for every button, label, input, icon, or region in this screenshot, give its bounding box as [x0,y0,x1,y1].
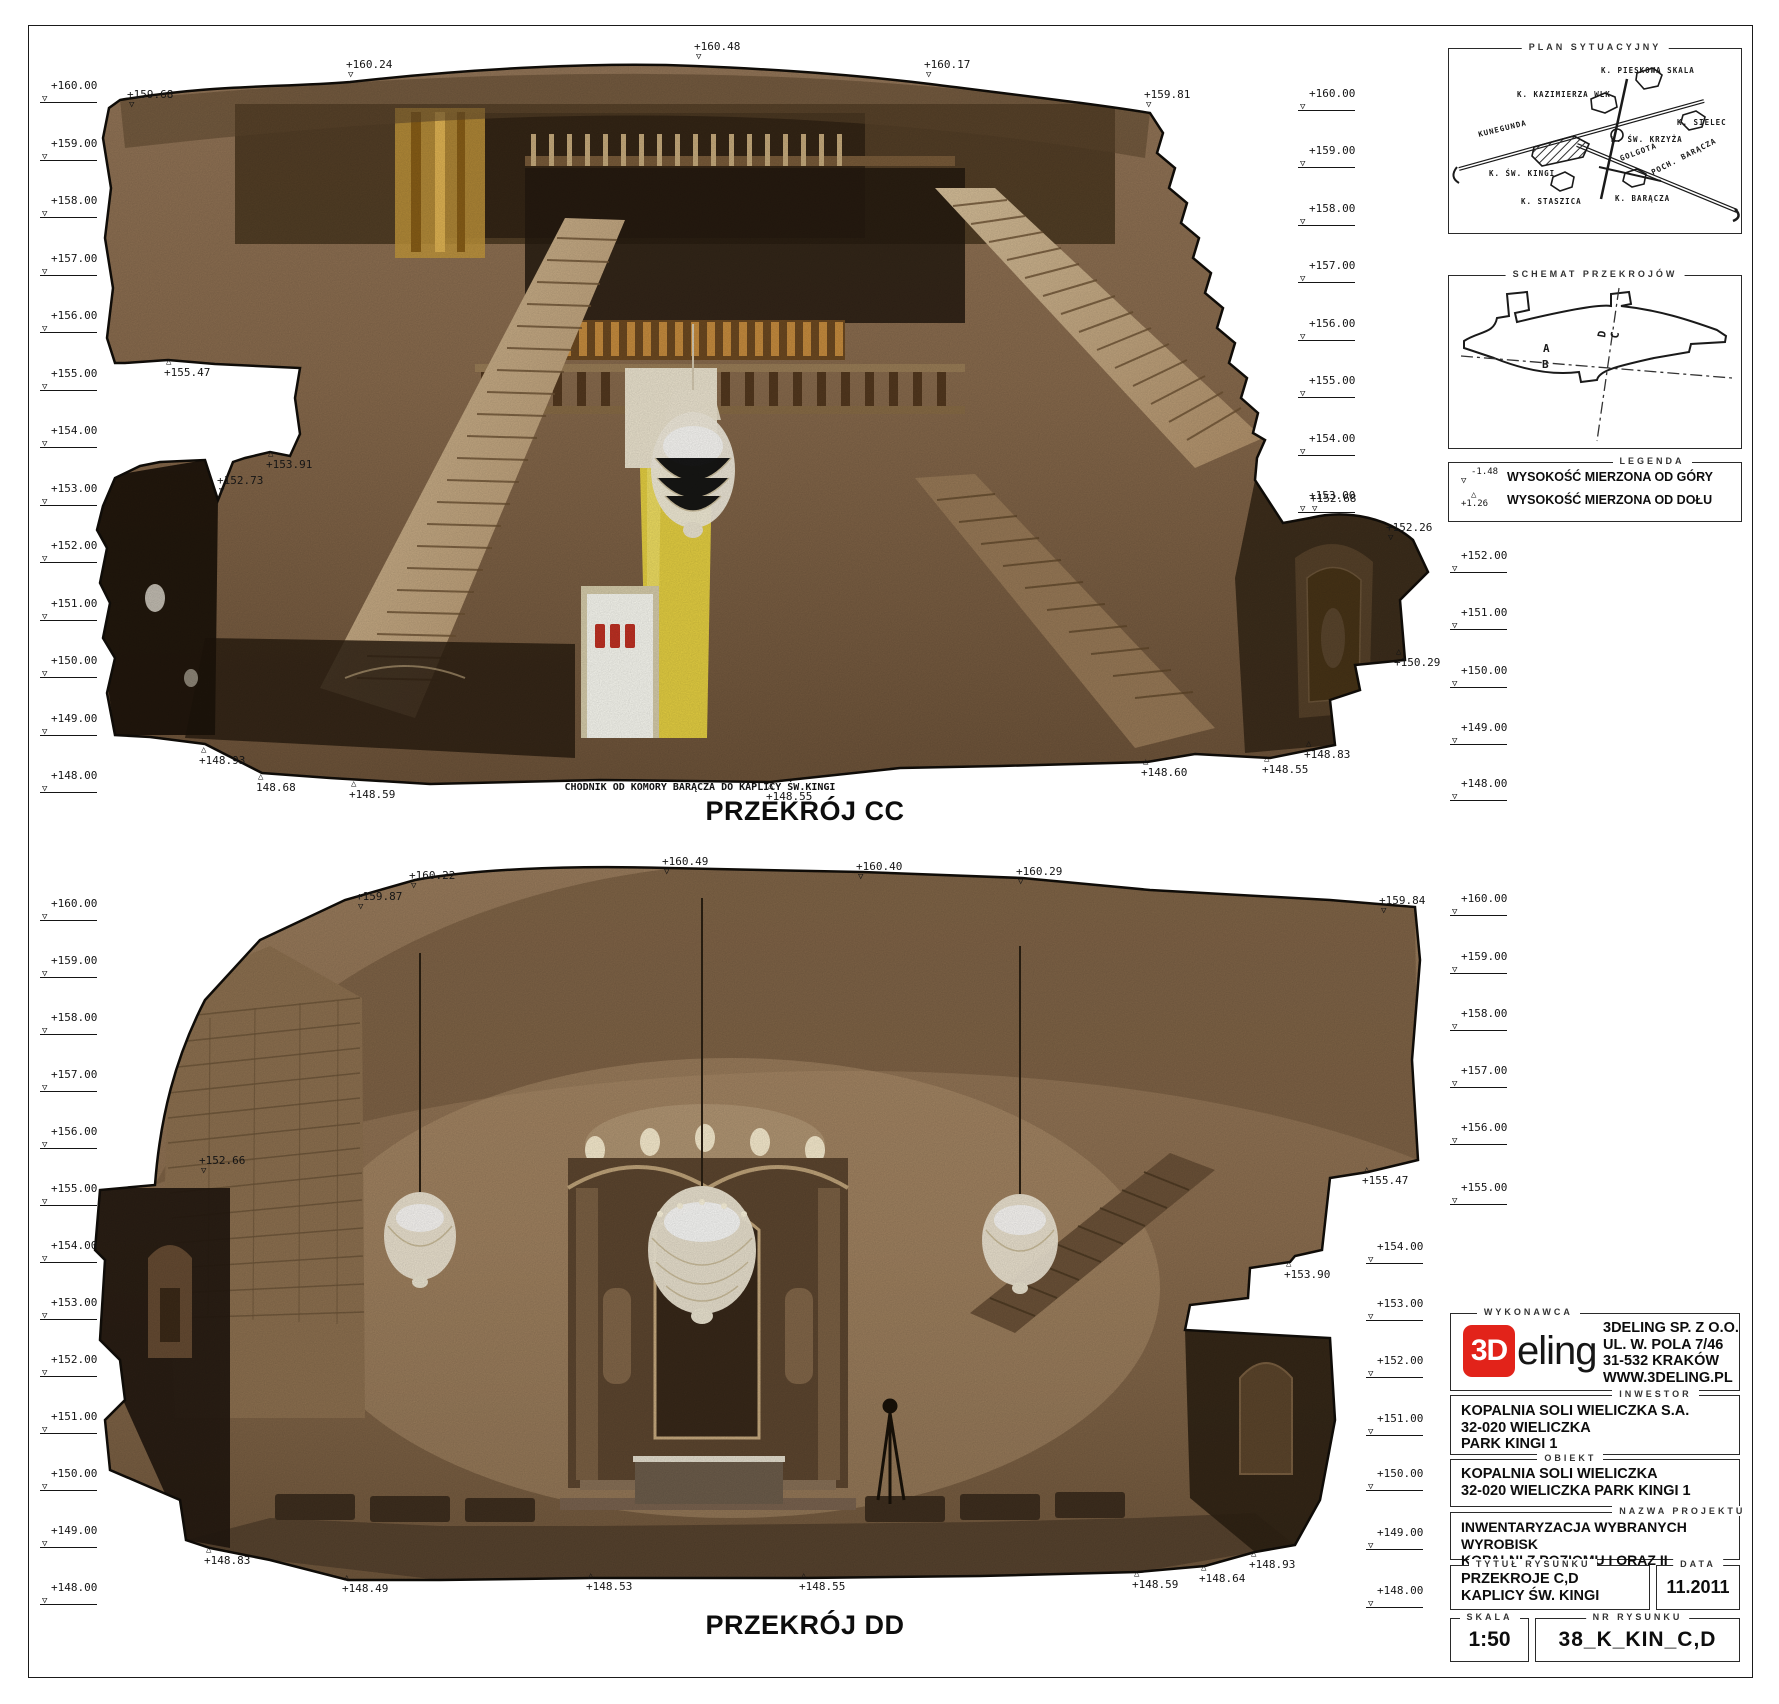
triangle-down-icon: ▽ [1368,1313,1373,1322]
level-marker: +152.00▽ [1450,550,1507,573]
cc-caption: CHODNIK OD KOMORY BARĄCZA DO KAPLICY ŚW.… [565,782,836,793]
level-marker: +160.00▽ [40,898,97,921]
triangle-down-icon: ▽ [1368,1483,1373,1492]
triangle-down-icon: ▽ [42,1084,47,1093]
spot-elevation: △+148.49 [342,1574,388,1595]
triangle-down-icon: ▽ [42,95,47,104]
level-marker: +159.00▽ [1298,145,1355,168]
spot-elevation: +160.17▽ [924,59,970,80]
triangle-down-icon: ▽ [1452,1080,1457,1089]
wykonawca-box: WYKONAWCA 3D eling 3DELING SP. Z O.O.UL.… [1450,1313,1740,1391]
triangle-down-icon: ▽ [1310,505,1356,514]
triangle-down-icon: ▽ [1016,878,1062,887]
level-marker: +148.00▽ [40,1582,97,1605]
level-marker: +158.00▽ [40,1012,97,1035]
triangle-down-icon: ▽ [199,1167,245,1176]
triangle-down-icon: ▽ [1368,1542,1373,1551]
plan-sytuacyjny-box: PLAN SYTUACYJNY [1448,48,1742,234]
skala-value: 1:50 [1451,1619,1528,1661]
level-marker: +156.00▽ [1450,1122,1507,1145]
triangle-down-icon: ▽ [1368,1600,1373,1609]
level-marker: +153.00▽ [1366,1298,1423,1321]
triangle-down-icon: ▽ [1452,1137,1457,1146]
spot-elevation: +160.48▽ [694,41,740,62]
level-marker: +160.00▽ [1298,88,1355,111]
level-marker: +149.00▽ [1450,722,1507,745]
triangle-down-icon: ▽ [1368,1256,1373,1265]
skala-box: SKALA 1:50 [1450,1618,1529,1662]
level-marker: +148.00▽ [1366,1585,1423,1608]
level-marker: +148.00▽ [40,770,97,793]
level-marker: +151.00▽ [40,1411,97,1434]
triangle-down-icon: ▽ [1452,1023,1457,1032]
nr-rysunku-value: 38_K_KIN_C,D [1536,1619,1739,1661]
spot-elevation: △+155.47 [1362,1166,1408,1187]
spot-elevation: △+150.29 [1394,648,1440,669]
level-marker: +153.00▽ [40,483,97,506]
triangle-down-icon: ▽ [1300,275,1305,284]
inwestor-box: INWESTOR KOPALNIA SOLI WIELICZKA S.A.32-… [1450,1395,1740,1455]
kingi-chamber-hatched [1532,136,1589,166]
map-label: K. SIELEC [1677,118,1727,127]
triangle-down-icon: ▽ [1452,565,1457,574]
triangle-down-icon: ▽ [1368,1428,1373,1437]
inwestor-header: INWESTOR [1612,1389,1698,1399]
triangle-down-icon: ▽ [42,1255,47,1264]
triangle-down-icon: ▽ [1300,333,1305,342]
spot-elevation: △+148.64 [1199,1564,1245,1585]
level-marker: +150.00▽ [40,655,97,678]
level-marker: +158.00▽ [1450,1008,1507,1031]
data-box: DATA 11.2011 [1656,1565,1740,1610]
level-marker: +149.00▽ [40,713,97,736]
triangle-down-icon: ▽ [1452,680,1457,689]
drawing-sheet: +160.00▽+159.00▽+158.00▽+157.00▽+156.00▽… [0,0,1779,1704]
spot-elevation: △+148.93 [1249,1550,1295,1571]
spot-elevation: △+148.59 [1132,1570,1178,1591]
map-label: KUNEGUNDA [1477,118,1527,139]
schemat-przekrojow-box: SCHEMAT PRZEKROJÓW ABDC [1448,275,1742,449]
level-marker: +159.00▽ [1450,951,1507,974]
nr-rysunku-header: NR RYSUNKU [1586,1612,1690,1622]
spot-elevation: +160.49▽ [662,856,708,877]
spot-elevation: +159.81▽ [1144,89,1190,110]
triangle-down-icon: ▽ [1452,908,1457,917]
triangle-down-icon: ▽ [1379,907,1425,916]
map-label: K. PIESKOWA SKALA [1601,66,1695,75]
level-marker: +160.00▽ [1450,893,1507,916]
level-marker: +157.00▽ [40,253,97,276]
triangle-down-icon: ▽ [42,268,47,277]
triangle-down-icon: ▽ [42,613,47,622]
legend-box: LEGENDA -1.48▽WYSOKOŚĆ MIERZONA OD GÓRY△… [1448,462,1742,522]
spot-elevation: △+155.47 [164,358,210,379]
map-label: K. STASZICA [1521,197,1582,206]
triangle-down-icon: ▽ [42,1141,47,1150]
triangle-down-icon: ▽ [42,670,47,679]
level-marker: +159.00▽ [40,955,97,978]
level-marker: +158.00▽ [1298,203,1355,226]
logo-3d-tile: 3D [1463,1325,1515,1377]
spot-elevation: △+148.83 [204,1546,250,1567]
tytul-rysunku-header: TYTUŁ RYSUNKU [1469,1559,1598,1569]
section-dd-scan-image [90,858,1430,1608]
obiekt-text: KOPALNIA SOLI WIELICZKA32-020 WIELICZKA … [1451,1460,1739,1499]
map-label: A [1543,342,1551,355]
schemat-map: ABDC [1449,276,1741,448]
spot-elevation: +160.22▽ [409,870,455,891]
map-label: K. KAZIMIERZA WLK. [1517,90,1616,99]
triangle-down-icon: ▽ [42,383,47,392]
triangle-down-icon: ▽ [1300,103,1305,112]
spot-elevation: +152.68▽ [1310,493,1356,514]
obiekt-header: OBIEKT [1537,1453,1603,1463]
obiekt-box: OBIEKT KOPALNIA SOLI WIELICZKA32-020 WIE… [1450,1459,1740,1507]
spot-elevation: +152.73▽ [217,475,263,496]
level-marker: +148.00▽ [1450,778,1507,801]
data-value: 11.2011 [1657,1566,1739,1609]
triangle-down-icon: ▽ [1300,218,1305,227]
triangle-down-icon: ▽ [42,1027,47,1036]
triangle-down-icon: ▽ [356,903,402,912]
spot-elevation: △+148.55 [1262,755,1308,776]
spot-elevation: +159.87▽ [356,891,402,912]
spot-elevation: △148.68 [256,773,296,794]
triangle-down-icon: ▽ [42,1540,47,1549]
legend-item: -1.48▽WYSOKOŚĆ MIERZONA OD GÓRY [1461,468,1741,486]
level-marker: +149.00▽ [40,1525,97,1548]
level-marker: +157.00▽ [40,1069,97,1092]
level-marker: +160.00▽ [40,80,97,103]
triangle-down-icon: ▽ [1452,966,1457,975]
level-marker: +156.00▽ [40,310,97,333]
triangle-down-icon: ▽ [217,487,263,496]
triangle-down-icon: ▽ [1452,622,1457,631]
level-marker: +150.00▽ [1450,665,1507,688]
spot-elevation: △+153.91 [266,450,312,471]
triangle-down-icon: ▽ [42,1312,47,1321]
tytul-rysunku-text: PRZEKROJE C,DKAPLICY ŚW. KINGI [1451,1566,1649,1604]
inwestor-text: KOPALNIA SOLI WIELICZKA S.A.32-020 WIELI… [1451,1396,1739,1453]
level-marker: +159.00▽ [40,138,97,161]
triangle-down-icon: ▽ [856,873,902,882]
level-marker: +152.00▽ [40,1354,97,1377]
triangle-down-icon: ▽ [42,440,47,449]
triangle-down-icon: ▽ [42,1198,47,1207]
data-header: DATA [1673,1559,1723,1569]
skala-header: SKALA [1460,1612,1520,1622]
tytul-rysunku-box: TYTUŁ RYSUNKU PRZEKROJE C,DKAPLICY ŚW. K… [1450,1565,1650,1610]
dd-title: PRZEKRÓJ DD [705,1610,904,1641]
triangle-down-icon: ▽ [662,868,708,877]
level-marker: +152.00▽ [40,540,97,563]
map-label: D [1595,329,1609,339]
level-marker: +158.00▽ [40,195,97,218]
plan-map: K. PIESKOWA SKALAK. KAZIMIERZA WLK.K. SI… [1449,49,1741,233]
triangle-down-icon: ▽ [42,1597,47,1606]
wykonawca-header: WYKONAWCA [1477,1307,1580,1317]
level-marker: +154.00▽ [1298,433,1355,456]
level-marker: +149.00▽ [1366,1527,1423,1550]
spot-elevation: +152.66▽ [199,1155,245,1176]
spot-elevation: △+148.60 [1141,758,1187,779]
triangle-down-icon: ▽ [346,71,392,80]
triangle-down-icon: ▽ [1452,1197,1457,1206]
level-marker: +154.00▽ [40,425,97,448]
level-marker: +156.00▽ [1298,318,1355,341]
3deling-logo: 3D eling [1463,1325,1597,1377]
level-marker: +155.00▽ [1298,375,1355,398]
triangle-down-icon: ▽ [42,153,47,162]
level-marker: +157.00▽ [1298,260,1355,283]
spot-elevation: △+148.59 [349,780,395,801]
triangle-down-icon: ▽ [1300,505,1305,514]
triangle-down-icon: ▽ [127,101,173,110]
map-label: K. ŚW. KINGI [1489,169,1555,178]
triangle-down-icon: ▽ [1452,793,1457,802]
triangle-down-icon: ▽ [694,53,740,62]
spot-elevation: +160.40▽ [856,861,902,882]
triangle-down-icon: ▽ [1368,1370,1373,1379]
level-marker: +155.00▽ [40,1183,97,1206]
spot-elevation: △+148.93 [199,746,245,767]
map-label: B [1542,358,1550,371]
level-marker: +150.00▽ [40,1468,97,1491]
nr-rysunku-box: NR RYSUNKU 38_K_KIN_C,D [1535,1618,1740,1662]
triangle-down-icon: ▽ [42,728,47,737]
spot-elevation: △+148.53 [586,1572,632,1593]
level-marker: +152.00▽ [1366,1355,1423,1378]
level-marker: +151.00▽ [40,598,97,621]
triangle-down-icon: ▽ [42,498,47,507]
map-label: GOLGOTA [1619,141,1658,163]
triangle-down-icon: ▽ [42,913,47,922]
triangle-down-icon: ▽ [1452,737,1457,746]
level-marker: +155.00▽ [1450,1182,1507,1205]
spot-elevation: △+153.90 [1284,1260,1330,1281]
section-cc-scan-image [95,38,1445,798]
spot-elevation: △+148.55 [799,1572,845,1593]
triangle-down-icon: ▽ [1300,160,1305,169]
triangle-down-icon: ▽ [42,970,47,979]
spot-elevation: +159.84▽ [1379,895,1425,916]
triangle-down-icon: ▽ [1300,390,1305,399]
cc-title: PRZEKRÓJ CC [705,796,904,827]
level-marker: +153.00▽ [40,1297,97,1320]
legend-rows: -1.48▽WYSOKOŚĆ MIERZONA OD GÓRY△+1.26WYS… [1449,463,1741,521]
triangle-down-icon: ▽ [42,555,47,564]
spot-elevation: +159.68▽ [127,89,173,110]
triangle-down-icon: ▽ [1386,534,1432,543]
wykonawca-address: 3DELING SP. Z O.O.UL. W. POLA 7/4631-532… [1603,1320,1739,1386]
map-label: K. ŚW. KRZYŻA [1611,135,1683,144]
map-label: C [1608,330,1622,340]
level-marker: +151.00▽ [1366,1413,1423,1436]
level-marker: +151.00▽ [1450,607,1507,630]
legend-item: △+1.26WYSOKOŚĆ MIERZONA OD DOŁU [1461,491,1741,509]
nazwa-projektu-box: NAZWA PROJEKTU INWENTARYZACJA WYBRANYCH … [1450,1512,1740,1560]
triangle-down-icon: ▽ [1300,448,1305,457]
spot-elevation: +152.26▽ [1386,522,1432,543]
triangle-down-icon: ▽ [42,1483,47,1492]
level-marker: +150.00▽ [1366,1468,1423,1491]
spot-elevation: +160.24▽ [346,59,392,80]
map-label: K. BARĄCZA [1615,194,1670,203]
level-marker: +155.00▽ [40,368,97,391]
spot-elevation: △+148.83 [1304,740,1350,761]
nazwa-projektu-header: NAZWA PROJEKTU [1612,1506,1752,1516]
triangle-down-icon: ▽ [42,1369,47,1378]
level-marker: +154.00▽ [1366,1241,1423,1264]
level-marker: +156.00▽ [40,1126,97,1149]
triangle-down-icon: ▽ [409,882,455,891]
level-marker: +154.00▽ [40,1240,97,1263]
triangle-down-icon: ▽ [42,325,47,334]
triangle-down-icon: ▽ [924,71,970,80]
level-marker: +157.00▽ [1450,1065,1507,1088]
triangle-down-icon: ▽ [42,1426,47,1435]
spot-elevation: +160.29▽ [1016,866,1062,887]
triangle-down-icon: ▽ [42,210,47,219]
triangle-down-icon: ▽ [42,785,47,794]
triangle-down-icon: ▽ [1144,101,1190,110]
